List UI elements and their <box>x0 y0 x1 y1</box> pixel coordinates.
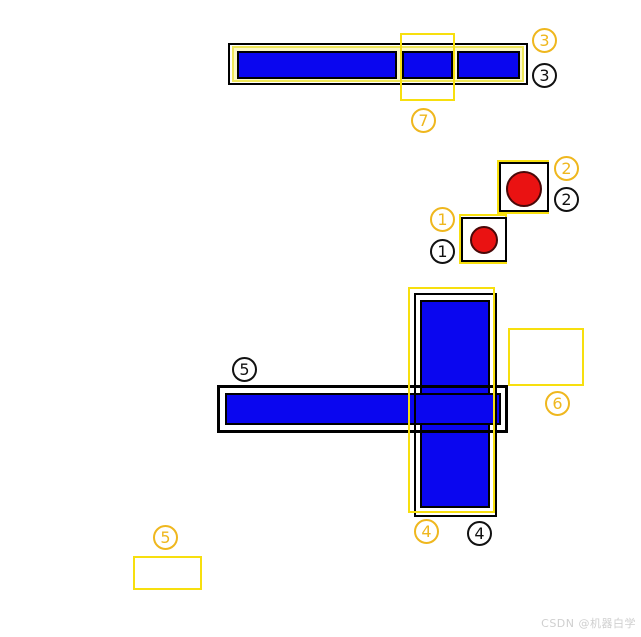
red-circle-1 <box>470 226 498 254</box>
box-6-yellow <box>508 328 584 386</box>
label-3-black: 3 <box>532 63 557 88</box>
top-bar-blue-segment-3 <box>457 51 520 79</box>
box-5-yellow <box>133 556 202 590</box>
label-7-yellow: 7 <box>411 108 436 133</box>
label-4-black: 4 <box>467 521 492 546</box>
label-5b-yellow: 5 <box>153 525 178 550</box>
label-4-yellow: 4 <box>414 519 439 544</box>
top-bar-blue-segment-1 <box>237 51 397 79</box>
box-7-yellow <box>400 33 455 101</box>
csdn-watermark: CSDN @机器白学 <box>541 615 636 631</box>
red-circle-2 <box>506 171 542 207</box>
label-5-black: 5 <box>232 357 257 382</box>
label-2-black: 2 <box>554 187 579 212</box>
box-4-yellow <box>408 287 495 513</box>
figure-canvas: 3 3 7 2 2 1 1 5 6 4 4 5 CSDN @机器白学 <box>0 0 641 637</box>
label-1-yellow: 1 <box>430 207 455 232</box>
label-3-yellow: 3 <box>532 28 557 53</box>
label-6-yellow: 6 <box>545 391 570 416</box>
label-1-black: 1 <box>430 239 455 264</box>
label-2-yellow: 2 <box>554 156 579 181</box>
